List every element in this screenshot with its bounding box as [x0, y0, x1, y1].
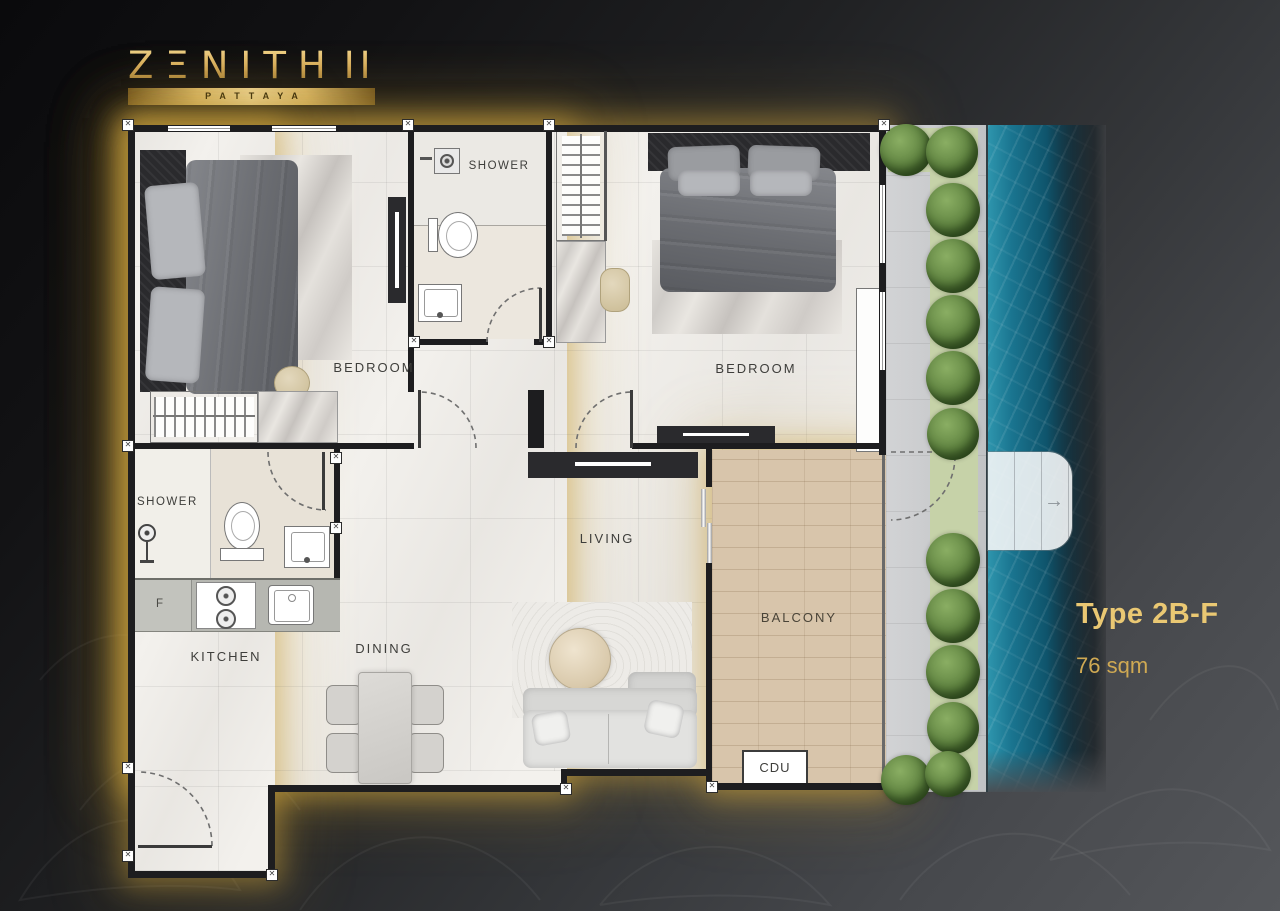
label-dining: DINING	[355, 642, 413, 655]
shrub	[926, 351, 980, 405]
column-marker: ✕	[122, 850, 134, 862]
column-marker: ✕	[402, 119, 414, 131]
column-marker: ✕	[408, 336, 420, 348]
column-marker: ✕	[543, 119, 555, 131]
door-leaf	[630, 390, 633, 448]
shrub	[926, 295, 980, 349]
shrub	[926, 239, 980, 293]
column-marker: ✕	[330, 452, 342, 464]
label-balcony: BALCONY	[761, 611, 837, 624]
walkway-gate-arc	[891, 456, 955, 520]
shrub	[926, 589, 980, 643]
door-swing-arcs	[0, 0, 1280, 911]
shrub	[881, 755, 931, 805]
door-leaf	[418, 390, 421, 448]
window	[272, 126, 336, 131]
unit-type-title: Type 2B-F	[1076, 598, 1219, 631]
column-marker: ✕	[560, 783, 572, 795]
window	[880, 185, 885, 263]
shrub	[926, 645, 980, 699]
shrub	[927, 702, 979, 754]
label-fridge: F	[156, 599, 165, 611]
window	[168, 126, 230, 131]
entrance-door-arc	[138, 772, 212, 846]
door-leaf	[322, 452, 325, 510]
shrub	[926, 533, 980, 587]
label-shower-bottom: SHOWER	[137, 497, 198, 509]
label-bedroom-right: BEDROOM	[715, 362, 796, 375]
shrub	[926, 183, 980, 237]
label-bedroom-left: BEDROOM	[333, 361, 414, 374]
door-leaf	[539, 288, 542, 342]
column-marker: ✕	[706, 781, 718, 793]
unit-type-block: Type 2B-F 76 sqm	[1076, 598, 1219, 679]
shrub	[926, 126, 978, 178]
label-shower-top: SHOWER	[469, 161, 530, 173]
shrub	[925, 751, 971, 797]
zenith-floorplan-page: ZΞNITHII PATTAYA	[0, 0, 1280, 911]
column-marker: ✕	[878, 119, 890, 131]
unit-area: 76 sqm	[1076, 653, 1219, 679]
door-leaf	[138, 845, 212, 848]
label-living: LIVING	[580, 532, 635, 545]
bedroom-right-door-arc	[576, 392, 632, 448]
bathroom-top-door-arc	[487, 288, 541, 342]
window	[880, 292, 885, 370]
column-marker: ✕	[122, 119, 134, 131]
column-marker: ✕	[266, 869, 278, 881]
shrub	[880, 124, 932, 176]
bedroom-left-door-arc	[420, 392, 476, 448]
column-marker: ✕	[330, 522, 342, 534]
label-kitchen: KITCHEN	[190, 650, 261, 663]
column-marker: ✕	[122, 762, 134, 774]
shrub	[927, 408, 979, 460]
bathroom-bottom-door-arc	[268, 452, 326, 510]
column-marker: ✕	[122, 440, 134, 452]
column-marker: ✕	[543, 336, 555, 348]
